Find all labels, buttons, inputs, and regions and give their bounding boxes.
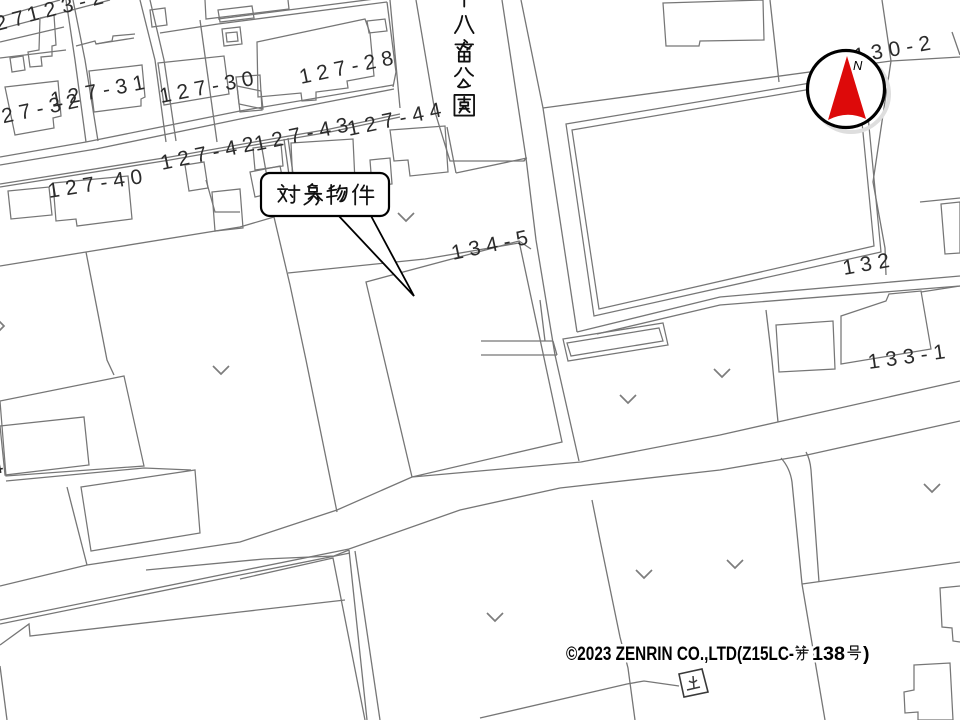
svg-text:): ) [863, 643, 870, 665]
svg-text:©2023 ZENRIN CO.,LTD(Z15LC-: ©2023 ZENRIN CO.,LTD(Z15LC- [566, 643, 794, 665]
svg-text:N: N [853, 58, 863, 73]
svg-text:138: 138 [812, 643, 845, 665]
